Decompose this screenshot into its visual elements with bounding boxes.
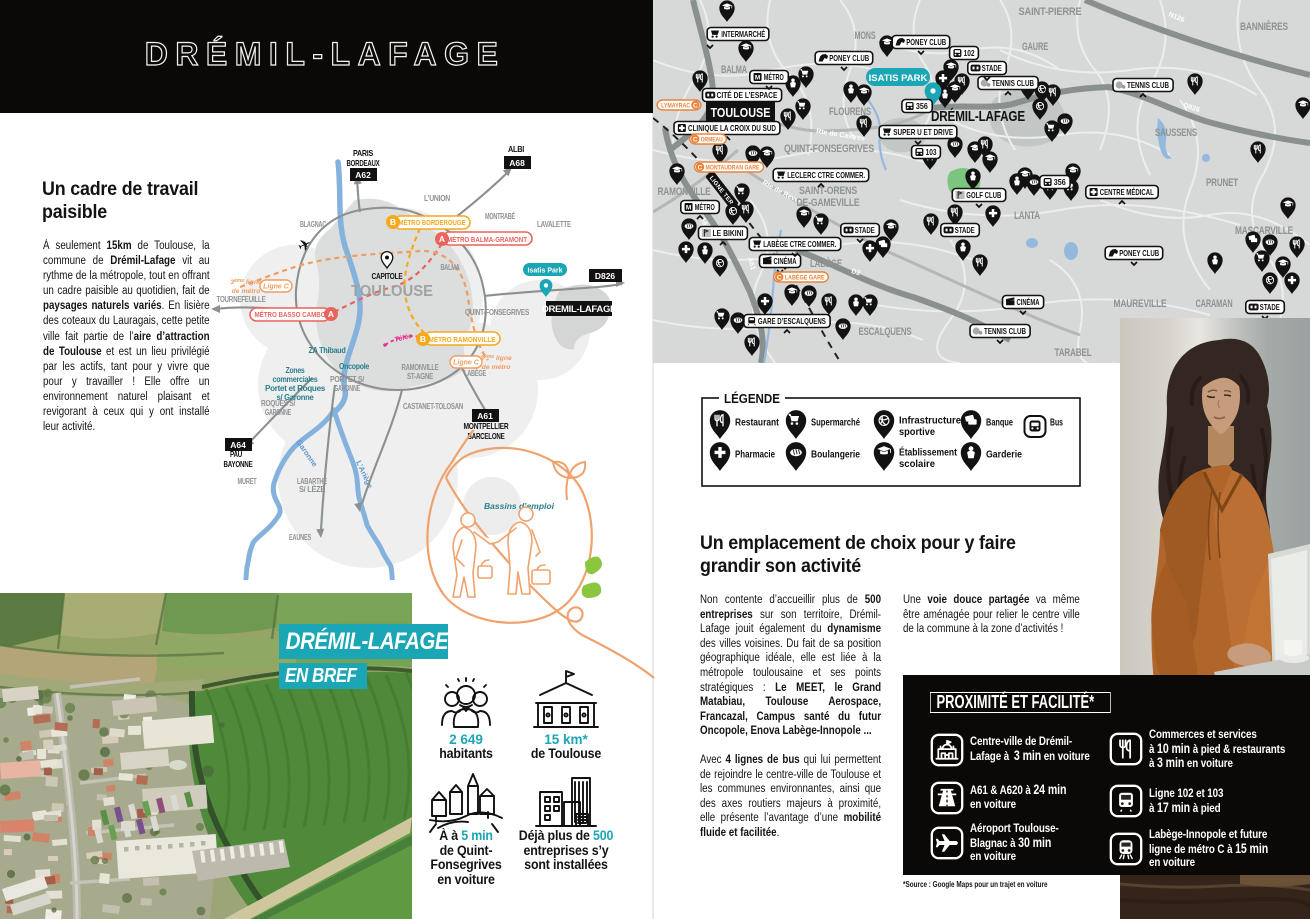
svg-text:BAYONNE: BAYONNE <box>224 459 253 469</box>
svg-text:GARONNE: GARONNE <box>265 408 291 417</box>
svg-text:A: A <box>439 234 445 244</box>
svg-text:PARIS: PARIS <box>353 148 374 158</box>
svg-text:MÉTRO: MÉTRO <box>764 71 784 82</box>
svg-text:MÉTRO BORDEROUGE: MÉTRO BORDEROUGE <box>399 218 466 227</box>
svg-text:PORTET S/: PORTET S/ <box>330 375 365 384</box>
svg-text:ORMEAU: ORMEAU <box>701 136 723 143</box>
svg-text:356: 356 <box>916 101 928 111</box>
svg-text:RAMONVILLE: RAMONVILLE <box>658 186 711 198</box>
svg-text:MAUREVILLE: MAUREVILLE <box>1114 298 1167 310</box>
svg-text:scolaire: scolaire <box>899 459 935 470</box>
svg-text:DREMIL-LAFAGE: DREMIL-LAFAGE <box>542 304 616 315</box>
svg-text:CENTRE MÉDICAL: CENTRE MÉDICAL <box>1100 186 1154 197</box>
svg-text:LANTA: LANTA <box>1014 210 1040 222</box>
svg-text:C: C <box>693 103 698 110</box>
svg-text:SAUSSENS: SAUSSENS <box>1155 127 1197 139</box>
svg-text:103: 103 <box>926 147 937 157</box>
svg-text:TENNIS CLUB: TENNIS CLUB <box>984 326 1026 336</box>
svg-text:Boulangerie: Boulangerie <box>811 450 860 461</box>
svg-text:sportive: sportive <box>899 427 935 438</box>
svg-text:CITÉ DE L’ESPACE: CITÉ DE L’ESPACE <box>717 89 778 100</box>
svg-text:L’UNION: L’UNION <box>424 194 451 203</box>
svg-text:PRUNET: PRUNET <box>1206 177 1238 189</box>
svg-text:TOULOUSE: TOULOUSE <box>351 283 433 300</box>
svg-text:SUPER U ET DRIVE: SUPER U ET DRIVE <box>893 127 953 137</box>
svg-text:Banque: Banque <box>986 418 1013 429</box>
svg-text:MÉTRO BALMA-GRAMONT: MÉTRO BALMA-GRAMONT <box>447 235 528 244</box>
svg-text:DRÉMIL-LAFAGE: DRÉMIL-LAFAGE <box>931 108 1025 125</box>
svg-text:MÉTRO BASSO CAMBO: MÉTRO BASSO CAMBO <box>255 310 326 319</box>
svg-text:102: 102 <box>964 48 975 58</box>
svg-text:ST-AGNE: ST-AGNE <box>407 372 433 381</box>
svg-text:QUINT-FONSEGRIVES: QUINT-FONSEGRIVES <box>465 308 529 317</box>
svg-text:STADE: STADE <box>982 63 1002 73</box>
svg-text:Supermarché: Supermarché <box>811 418 860 429</box>
svg-text:LÉGENDE: LÉGENDE <box>724 391 780 406</box>
svg-text:356: 356 <box>1054 177 1066 187</box>
svg-text:A68: A68 <box>509 158 525 168</box>
svg-text:Établissement: Établissement <box>899 446 958 459</box>
svg-text:GAURE: GAURE <box>1022 41 1048 53</box>
svg-text:CINÉMA: CINÉMA <box>774 255 797 266</box>
svg-text:Isatis Park: Isatis Park <box>527 268 562 275</box>
svg-text:SAINT-ORENS: SAINT-ORENS <box>799 185 857 197</box>
svg-text:MONTRABÉ: MONTRABÉ <box>485 212 515 221</box>
svg-text:Bassins d’emploi: Bassins d’emploi <box>484 501 555 511</box>
svg-text:STADE: STADE <box>855 225 875 235</box>
svg-text:A62: A62 <box>355 170 371 180</box>
svg-text:PONEY CLUB: PONEY CLUB <box>906 37 946 47</box>
svg-text:MÉTRO: MÉTRO <box>695 201 715 212</box>
svg-text:PONEY CLUB: PONEY CLUB <box>829 53 869 63</box>
svg-text:de métro: de métro <box>232 288 261 295</box>
svg-text:LYMAYRAC: LYMAYRAC <box>661 102 690 109</box>
svg-text:BORDEAUX: BORDEAUX <box>347 158 380 168</box>
svg-text:CAPITOLE: CAPITOLE <box>372 272 404 281</box>
svg-text:CASTANET-TOLOSAN: CASTANET-TOLOSAN <box>403 402 464 411</box>
svg-text:LABÈGE GARE: LABÈGE GARE <box>785 273 825 281</box>
svg-text:GARE D’ESCALQUENS: GARE D’ESCALQUENS <box>758 316 826 326</box>
svg-text:MASCARVILLE: MASCARVILLE <box>1235 225 1293 237</box>
svg-text:B: B <box>420 334 426 344</box>
svg-text:Garderie: Garderie <box>986 450 1022 461</box>
svg-text:BALMA: BALMA <box>721 64 747 76</box>
svg-text:INTERMARCHÉ: INTERMARCHÉ <box>721 28 765 39</box>
svg-text:Pharmacie: Pharmacie <box>735 450 775 461</box>
svg-text:CINÉMA: CINÉMA <box>1017 296 1040 307</box>
svg-text:LABÈGE: LABÈGE <box>464 369 486 378</box>
svg-text:LAVALETTE: LAVALETTE <box>537 220 571 229</box>
svg-text:STADE: STADE <box>1260 302 1280 312</box>
svg-text:CARAMAN: CARAMAN <box>1196 298 1233 310</box>
svg-text:SAINT-PIERRE: SAINT-PIERRE <box>1019 6 1082 18</box>
svg-text:DRÉMIL-LAFAGE: DRÉMIL-LAFAGE <box>145 36 506 72</box>
svg-text:C: C <box>777 275 782 282</box>
svg-text:Ligne C: Ligne C <box>453 360 480 367</box>
svg-text:GOLF CLUB: GOLF CLUB <box>966 190 1001 200</box>
svg-text:A61: A61 <box>477 411 493 421</box>
svg-text:MONS: MONS <box>855 30 876 42</box>
svg-text:Portet et Roques: Portet et Roques <box>265 384 326 393</box>
svg-text:MURET: MURET <box>238 477 257 486</box>
svg-text:PAU: PAU <box>230 449 242 459</box>
svg-text:S/ LÈZE: S/ LÈZE <box>299 485 325 494</box>
svg-text:ISATIS PARK: ISATIS PARK <box>869 73 928 84</box>
svg-text:ZA Thibaud: ZA Thibaud <box>309 346 346 355</box>
svg-text:GARONNE: GARONNE <box>334 384 360 393</box>
svg-text:s/ Garonne: s/ Garonne <box>277 393 315 402</box>
svg-text:ALBI: ALBI <box>508 144 524 154</box>
svg-text:TENNIS CLUB: TENNIS CLUB <box>1127 80 1169 90</box>
svg-text:LECLERC CTRE COMMER.: LECLERC CTRE COMMER. <box>787 170 865 180</box>
svg-text:3ème ligne: 3ème ligne <box>230 278 262 286</box>
svg-text:Oncopole: Oncopole <box>339 362 370 371</box>
svg-text:TARABEL: TARABEL <box>1055 347 1092 359</box>
svg-text:M: M <box>755 74 760 81</box>
svg-text:BANNIÈRES: BANNIÈRES <box>1240 20 1288 33</box>
svg-text:Bus: Bus <box>1050 418 1063 429</box>
svg-text:C: C <box>693 137 698 144</box>
svg-text:TENNIS CLUB: TENNIS CLUB <box>992 78 1034 88</box>
svg-text:RAMONVILLE: RAMONVILLE <box>402 363 439 372</box>
svg-text:LABÈGE: LABÈGE <box>810 257 842 270</box>
svg-text:Ligne C: Ligne C <box>263 284 290 291</box>
svg-text:D826: D826 <box>595 271 616 281</box>
svg-text:LE BIKINI: LE BIKINI <box>713 228 744 238</box>
svg-text:C: C <box>698 165 703 172</box>
svg-text:Zones: Zones <box>286 366 306 375</box>
svg-text:MÉTRO RAMONVILLE: MÉTRO RAMONVILLE <box>429 335 496 344</box>
svg-text:A: A <box>328 309 334 319</box>
svg-text:STADE: STADE <box>955 225 975 235</box>
svg-text:TOURNEFEUILLE: TOURNEFEUILLE <box>217 295 266 304</box>
svg-text:EAUNES: EAUNES <box>289 533 311 542</box>
svg-text:MONTAUDRAN GARE: MONTAUDRAN GARE <box>706 164 760 171</box>
svg-text:BLAGNAC: BLAGNAC <box>300 220 326 229</box>
svg-text:ESCALQUENS: ESCALQUENS <box>859 326 912 338</box>
svg-text:TOULOUSE: TOULOUSE <box>711 105 771 120</box>
svg-text:BALMA: BALMA <box>441 263 460 272</box>
svg-text:B: B <box>390 217 396 227</box>
svg-text:commerciales: commerciales <box>273 375 319 384</box>
svg-text:LABÈGE CTRE COMMER.: LABÈGE CTRE COMMER. <box>763 238 836 249</box>
svg-text:Restaurant: Restaurant <box>735 418 780 429</box>
svg-text:Infrastructure: Infrastructure <box>899 416 961 427</box>
svg-text:QUINT-FONSEGRIVES: QUINT-FONSEGRIVES <box>784 143 874 155</box>
svg-text:M: M <box>686 204 691 211</box>
svg-text:CLINIQUE LA CROIX DU SUD: CLINIQUE LA CROIX DU SUD <box>688 123 776 133</box>
svg-text:PONEY CLUB: PONEY CLUB <box>1119 248 1159 258</box>
